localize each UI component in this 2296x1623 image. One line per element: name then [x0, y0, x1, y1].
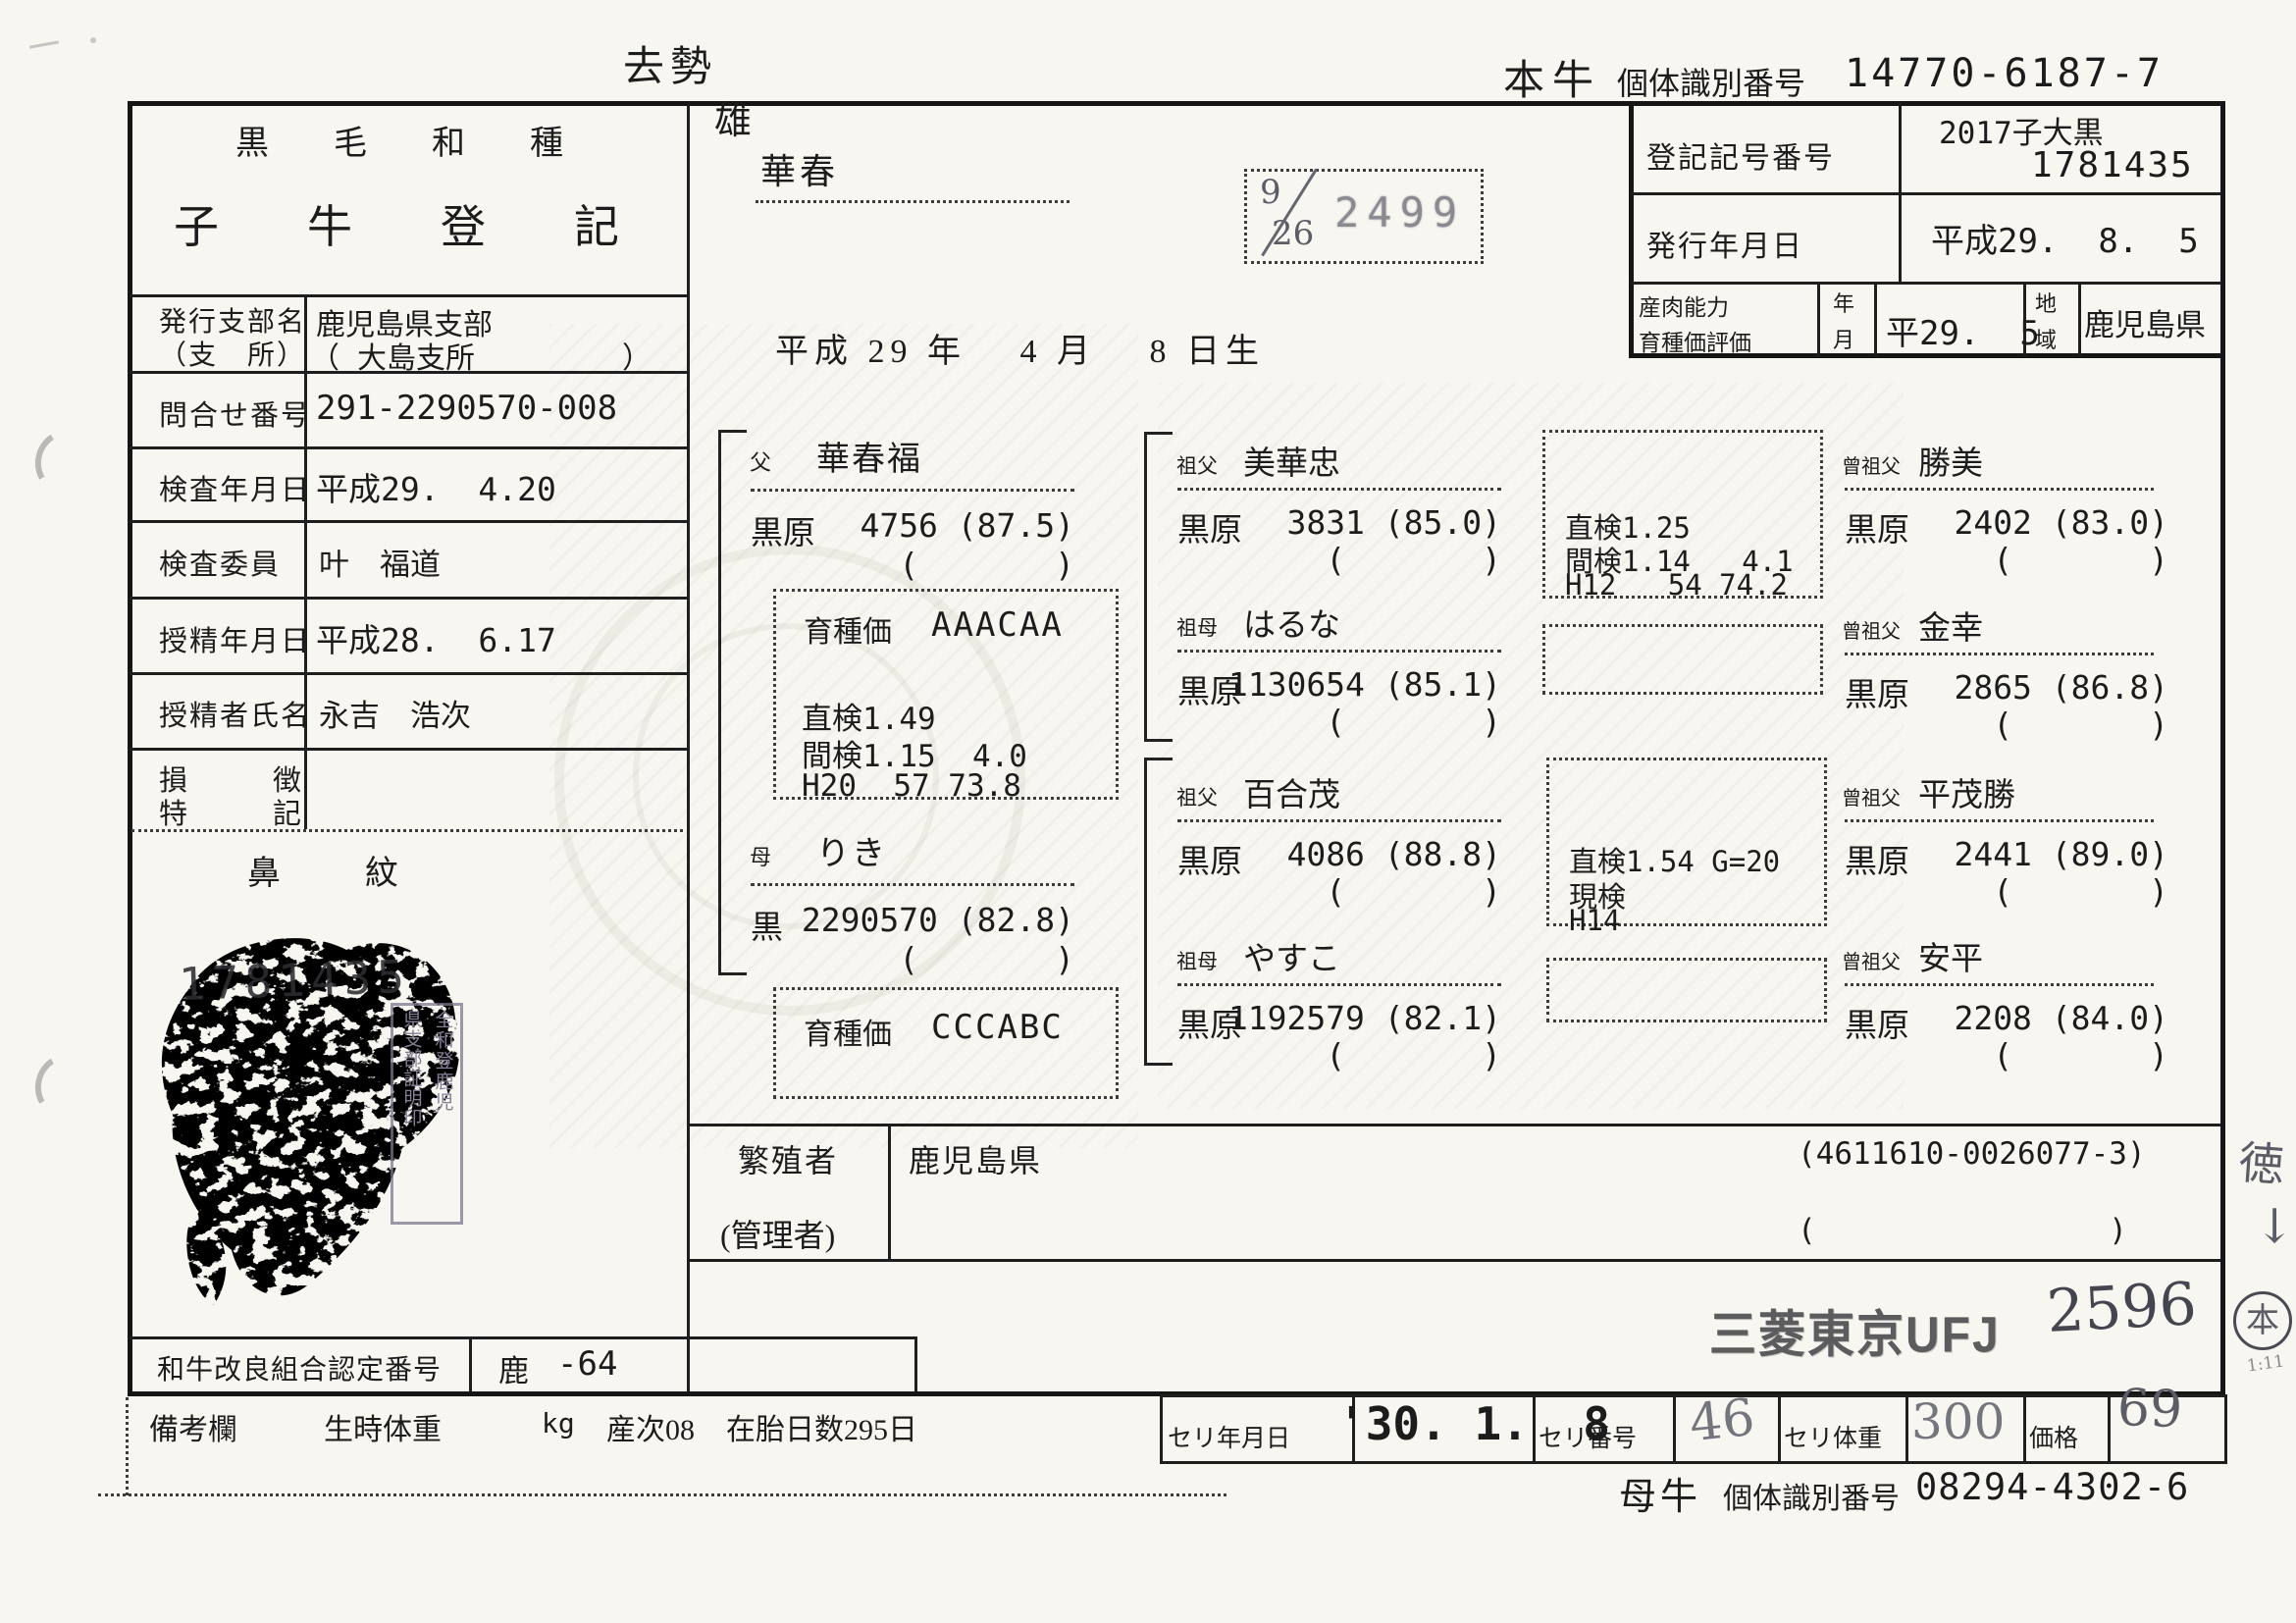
gp-eval-box-1: 直検1.25 間検1.14 4.1 H12 54 74.2 [1542, 430, 1823, 599]
gp-name: やすこ [1243, 932, 1340, 979]
insemination-date-value: 平成28. 6.17 [316, 614, 556, 661]
gp-relation-label: 祖母 [1176, 946, 1218, 975]
margin-circled-text: 本 [2246, 1301, 2279, 1340]
gp-eval-box-2-empty [1542, 624, 1823, 695]
ability-label-1: 産肉能力 [1639, 288, 1729, 322]
father-number-score: 4756 (87.5) [751, 506, 1074, 545]
ggp-name-underline [1845, 653, 2154, 655]
auction-number-label: セリ番号 [1539, 1419, 1637, 1454]
auction-cell-divider [2023, 1394, 2026, 1464]
dam-id-value: 08294-4302-6 [1915, 1466, 2189, 1508]
dam-id-label-main: 母牛 [1619, 1466, 1701, 1520]
manager-label: (管理者) [720, 1211, 835, 1256]
inspection-date-value: 平成29. 4.20 [316, 463, 556, 510]
inquiry-no-value: 291-2290570-008 [316, 389, 617, 428]
father-relation-label: 父 [750, 445, 771, 477]
gp-eval-box-4-empty [1546, 958, 1827, 1022]
month-label: 月 [1833, 323, 1854, 354]
gp-name: はるな [1243, 599, 1340, 646]
breeder-code: (4611610-0026077-3) [1798, 1136, 2146, 1172]
inspector-value: 叶 福道 [319, 540, 441, 584]
union-row-line [130, 1336, 914, 1339]
document-title: 子 牛 登 記 [128, 191, 687, 256]
gp-relation-label: 祖父 [1176, 782, 1218, 811]
ggp-name-underline [1845, 819, 2154, 822]
gp-number-score: 1130654 (85.1) [1177, 665, 1501, 704]
regbox-divider [2078, 282, 2081, 356]
calf-registration-document: 去勢 本牛 個体識別番号 14770-6187-7 登記記号番号 2017子大黒… [0, 0, 2296, 1623]
row-line [130, 446, 687, 449]
breeding-value-label: 育種価 [804, 1010, 892, 1053]
auction-weight-value: 300 [1911, 1393, 2005, 1450]
regbox-divider [1874, 282, 1877, 356]
ggp-name: 勝美 [1918, 437, 1983, 484]
year-label: 年 [1833, 287, 1854, 318]
mother-breeding-grade: CCCABC [931, 1008, 1064, 1047]
ggp-number-score: 2402 (83.0) [1845, 503, 2168, 542]
issuing-branch-label2: （支 所） [159, 334, 306, 373]
ggp-paren-empty: ( ) [1845, 872, 2168, 911]
ggp-paren-empty: ( ) [1845, 1036, 2168, 1074]
price-value: 69 [2116, 1379, 2183, 1440]
gp-eval-box-3: 直検1.54 G=20 現検 H14 [1546, 758, 1827, 926]
price-label: 価格 [2029, 1419, 2078, 1454]
margin-circled-character: 本 [2233, 1291, 2292, 1350]
mother-name: りき [816, 826, 887, 874]
ggp-name: 安平 [1918, 932, 1983, 979]
auction-weight-label: セリ体重 [1784, 1419, 1882, 1454]
animal-id-label-sub: 個体識別番号 [1617, 59, 1805, 104]
mother-paren-empty: ( ) [751, 940, 1074, 978]
row-line [130, 597, 687, 600]
eval-date-value: 平29. 5 [1886, 306, 2040, 354]
gestation-days-value: 在胎日数295日 [726, 1405, 917, 1448]
breeder-label: 繁殖者 [738, 1136, 838, 1181]
auction-cell-divider [1905, 1394, 1908, 1464]
gp-relation-label: 祖父 [1176, 450, 1218, 480]
auction-stamp-number: 2499 [1334, 188, 1465, 236]
maternal-gp-bracket [1144, 758, 1173, 1066]
union-cert-pref: 鹿 [498, 1346, 529, 1390]
inquiry-no-label: 問合せ番号 [159, 393, 311, 434]
gp-name-underline [1177, 819, 1501, 822]
issue-date-value: 平成29. 8. 5 [1931, 214, 2199, 262]
birth-date: 平成 29 年 4 月 8 日生 [775, 324, 1265, 372]
breeder-name: 鹿児島県 [909, 1136, 1042, 1181]
row-line [130, 672, 687, 675]
mother-name-underline [751, 883, 1074, 886]
ggp-name-underline [1845, 488, 2154, 491]
calf-name-underline [756, 200, 1070, 203]
ability-label-2: 育種価評価 [1639, 324, 1751, 357]
ggp-name: 平茂勝 [1918, 768, 2015, 815]
union-cert-label: 和牛改良組合認定番号 [157, 1348, 442, 1387]
father-name-underline [751, 489, 1074, 492]
inseminator-label: 授精者氏名 [159, 693, 311, 734]
union-row-divider [914, 1336, 917, 1391]
region-value: 鹿児島県 [2084, 300, 2206, 344]
reg-no-label: 登記記号番号 [1646, 133, 1835, 177]
cert-stamp-column-2: 県支部証明印 [398, 1010, 425, 1218]
ggp-number-score: 2865 (86.8) [1845, 668, 2168, 707]
ggp-relation-label: 曾祖父 [1842, 615, 1901, 644]
father-eval-line-3: H20 57 73.8 [802, 768, 1021, 804]
birth-weight-unit: kg [542, 1407, 575, 1440]
row-line [130, 748, 687, 751]
stamp-fraction-bottom: 26 [1272, 214, 1314, 253]
father-breeding-grade: AAACAA [931, 605, 1064, 645]
gp-paren-empty: ( ) [1177, 872, 1501, 911]
union-row-divider [469, 1336, 472, 1391]
margin-arrow-down: ↓ [2255, 1199, 2294, 1254]
gp-relation-label: 祖母 [1176, 612, 1218, 642]
paternal-gp-bracket [1144, 432, 1173, 742]
row-line [130, 294, 687, 297]
inspection-date-label: 検査年月日 [159, 467, 311, 508]
regbox-divider [1817, 282, 1820, 356]
parity-value: 産次08 [606, 1405, 695, 1448]
margin-handwriting-toku: 徳 [2237, 1126, 2286, 1194]
inspector-label: 検査委員 [159, 542, 281, 583]
scan-speck [90, 37, 96, 43]
auction-cell-divider [1673, 1394, 1676, 1464]
handwritten-lot-number: 2596 [2045, 1270, 2198, 1346]
auction-cell-divider [2108, 1394, 2111, 1464]
ggp-relation-label: 曾祖父 [1842, 782, 1901, 811]
parents-bracket [718, 430, 747, 975]
father-paren-empty: ( ) [751, 546, 1074, 584]
auction-cell-divider [1778, 1394, 1781, 1464]
gp-name: 百合茂 [1243, 768, 1340, 815]
gp-name: 美華忠 [1243, 437, 1340, 484]
ggp-number-score: 2208 (84.0) [1845, 999, 2168, 1037]
animal-id-label-main: 本牛 [1503, 47, 1601, 107]
castration-label: 去勢 [623, 33, 717, 93]
panel-divider [687, 103, 690, 1391]
regbox-line [1631, 282, 2221, 285]
issue-date-label: 発行年月日 [1646, 222, 1803, 265]
father-name: 華春福 [816, 432, 922, 480]
issuing-branch-value2: （ 大島支所 ） [310, 334, 652, 377]
row-line [130, 520, 687, 523]
dam-id-label-sub: 個体識別番号 [1723, 1474, 1900, 1517]
remarks-label: 備考欄 [149, 1405, 237, 1448]
label-divider [304, 294, 307, 829]
gp-number-score: 3831 (85.0) [1177, 503, 1501, 542]
margin-small-note: 1:11 [2246, 1351, 2286, 1376]
ggp-relation-label: 曾祖父 [1842, 946, 1901, 974]
regbox-divider [1899, 103, 1902, 282]
gp-paren-empty: ( ) [1177, 1036, 1501, 1074]
left-panel-titles: 黒 毛 和 種 子 牛 登 記 [128, 116, 687, 256]
punch-hole-top [28, 423, 103, 500]
branch-certification-stamp: 全和登鹿児 県支部証明印 [391, 1003, 463, 1225]
mother-breeding-value-box: 育種価 CCCABC [773, 987, 1119, 1099]
ggp-paren-empty: ( ) [1845, 541, 2168, 579]
breed-title: 黒 毛 和 種 [128, 116, 687, 164]
gp-number-score: 4086 (88.8) [1177, 835, 1501, 873]
ggp-number-score: 2441 (89.0) [1845, 835, 2168, 873]
birth-weight-label: 生時体重 [324, 1405, 442, 1448]
region-label-2: 域 [2035, 323, 2057, 354]
remarks-bottom-dotted-border [98, 1493, 1226, 1496]
defects-label-2: 特 記 [159, 791, 301, 832]
nose-print-label: 鼻 紋 [247, 846, 424, 894]
breeder-divider [888, 1124, 891, 1259]
animal-id-value: 14770-6187-7 [1845, 51, 2164, 96]
ggp-name-underline [1845, 983, 2154, 986]
father-breeding-value-box: 育種価 AAACAA 直検1.49 間検1.15 4.0 H20 57 73.8 [773, 589, 1119, 800]
auction-number-value: 46 [1687, 1388, 1757, 1454]
remarks-left-dotted-border [126, 1397, 129, 1495]
ggp-name: 金幸 [1918, 602, 1983, 649]
reg-no-value: 1781435 [2031, 145, 2194, 185]
inseminator-value: 永吉 浩次 [319, 691, 471, 735]
ggp-paren-empty: ( ) [1845, 706, 2168, 744]
gp-name-underline [1177, 650, 1501, 653]
breeder-bottom-line [687, 1259, 2220, 1262]
gp-name-underline [1177, 983, 1501, 986]
mother-number-score: 2290570 (82.8) [751, 901, 1074, 939]
union-cert-number: -64 [557, 1344, 617, 1384]
gp-name-underline [1177, 488, 1501, 491]
scan-speck [29, 40, 59, 48]
insemination-date-label: 授精年月日 [159, 618, 311, 659]
gp-paren-empty: ( ) [1177, 541, 1501, 579]
calf-name: 華春 [760, 143, 839, 194]
eval-line: H12 54 74.2 [1565, 568, 1788, 602]
cert-stamp-column-1: 全和登鹿児 [430, 1010, 456, 1218]
gp-number-score: 1192579 (82.1) [1177, 999, 1501, 1037]
breeder-top-line [687, 1124, 2220, 1126]
breeding-value-label: 育種価 [804, 607, 892, 651]
mother-relation-label: 母 [750, 840, 771, 871]
auction-date-label: セリ年月日 [1168, 1419, 1290, 1454]
ggp-relation-label: 曾祖父 [1842, 450, 1901, 479]
region-label-1: 地 [2035, 287, 2057, 318]
stamp-fraction-top: 9 [1260, 173, 1281, 212]
regbox-line [1631, 192, 2221, 195]
sex-value: 雄 [714, 90, 752, 144]
bank-stamp: 三菱東京UFJ [1709, 1293, 2001, 1366]
breeder-code-empty: ( ) [1798, 1213, 2127, 1248]
punch-hole-bottom [28, 1047, 103, 1125]
gp-paren-empty: ( ) [1177, 703, 1501, 741]
eval-line: H14 [1569, 904, 1620, 937]
nose-print-number-stamp: 1781435 [178, 950, 411, 1011]
